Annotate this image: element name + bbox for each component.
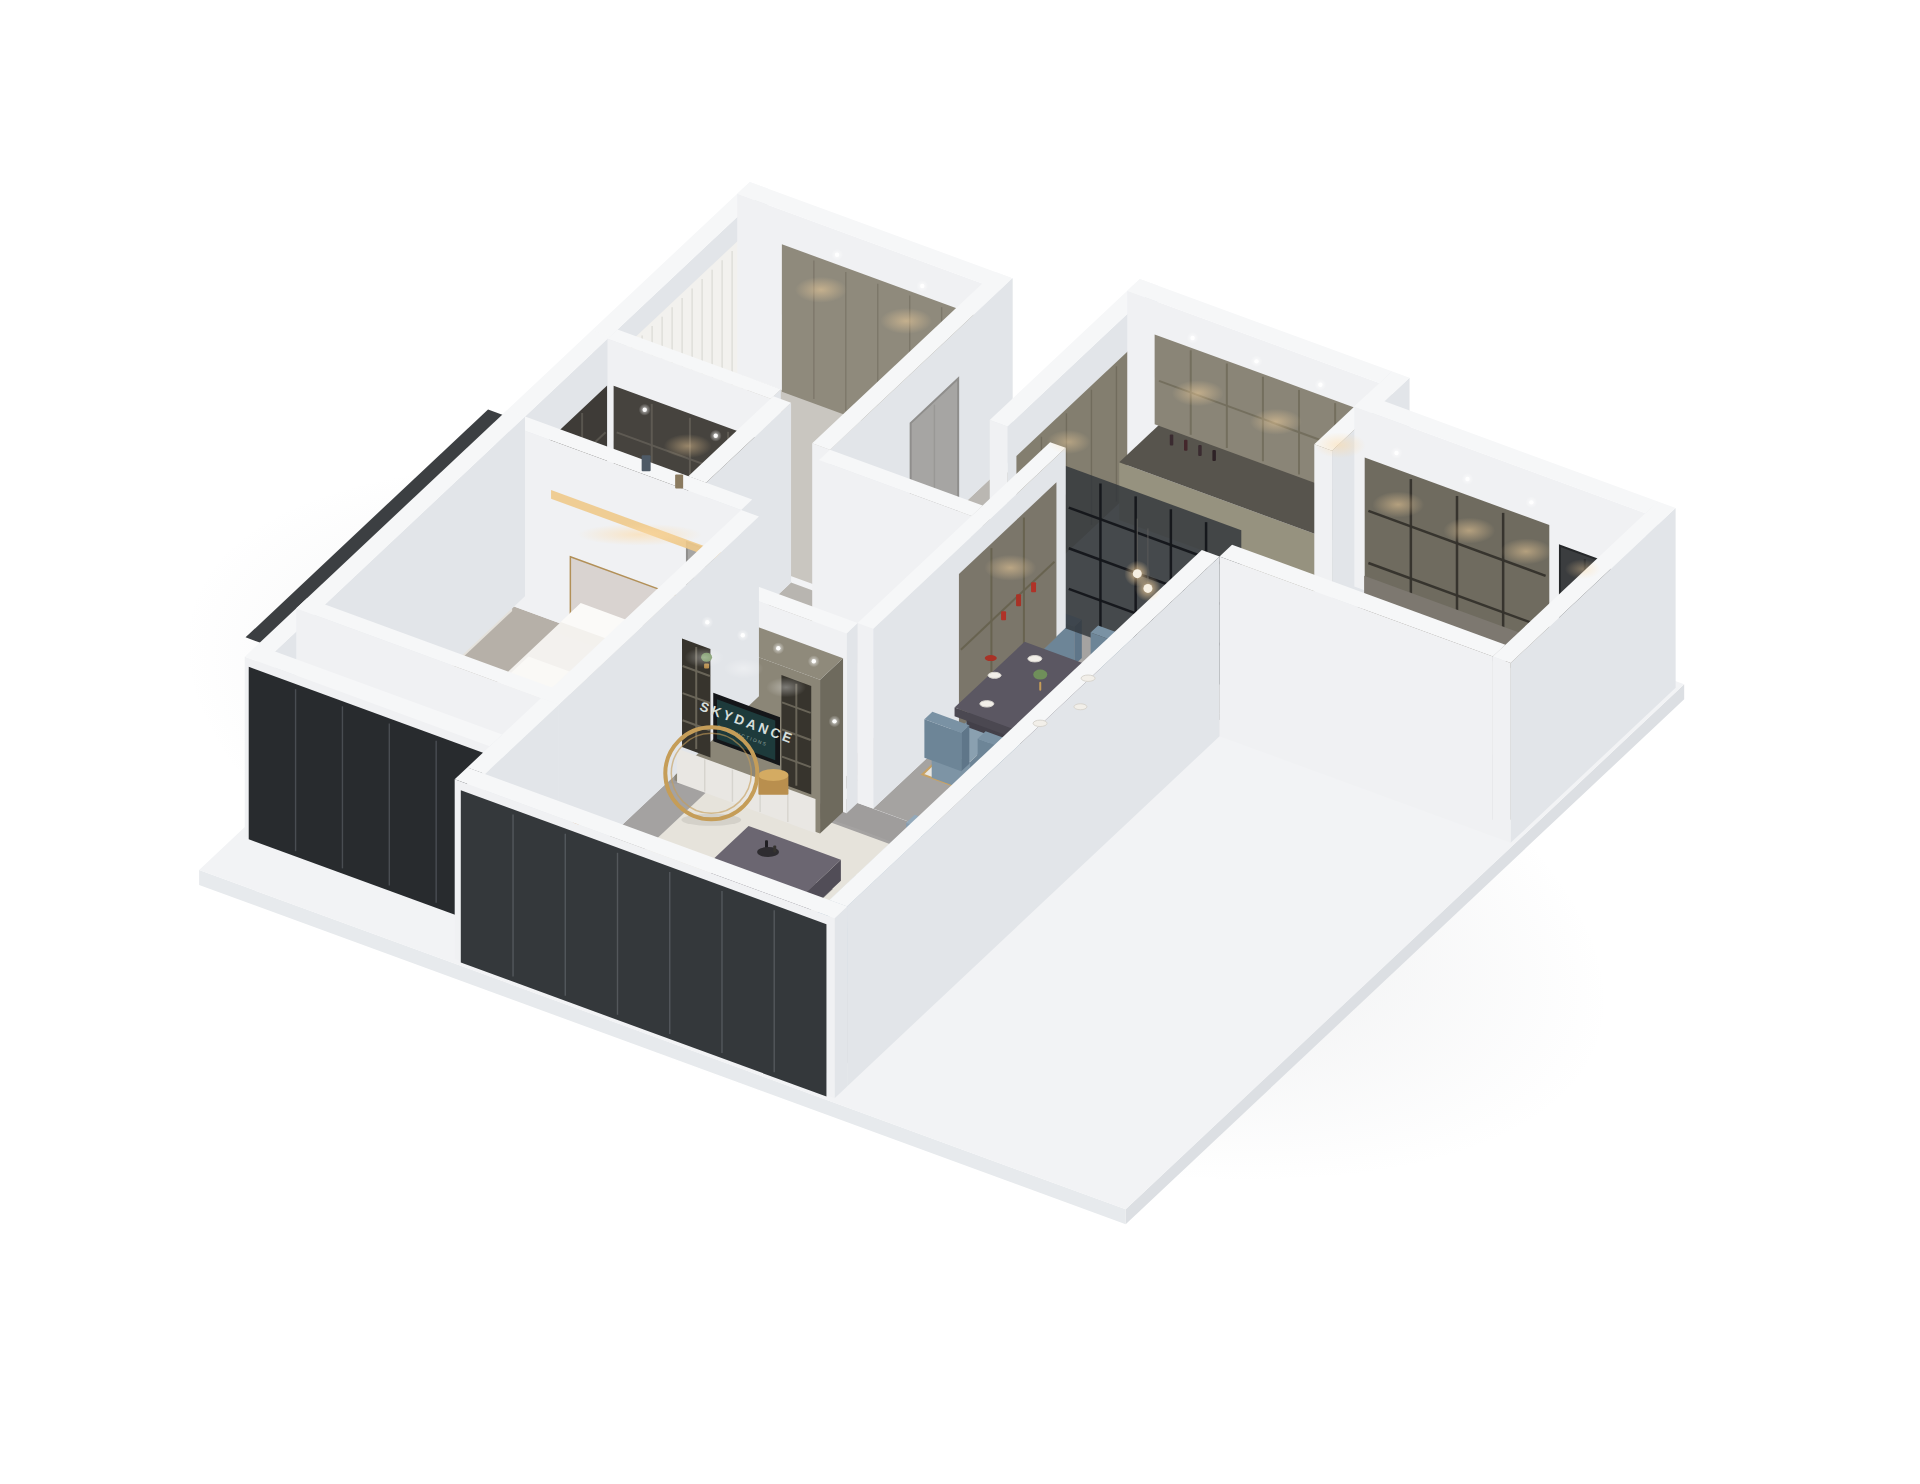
entry-downlight-1	[1394, 451, 1398, 455]
wall-tv-se	[847, 623, 858, 813]
tv-downlight-2	[741, 633, 745, 637]
wine-bottle-1	[1170, 434, 1174, 445]
dining-plate-6	[1074, 704, 1087, 710]
dining-centerpiece-stem	[1039, 682, 1041, 691]
kitchen-downlight-3	[1318, 383, 1322, 387]
floorplan-3d-dollhouse: SKYDANCEPRODUCTIONS	[0, 0, 1920, 1484]
dining-plate-5	[988, 672, 1001, 678]
niche-red-vase-2	[1016, 594, 1021, 606]
niche-red-vase-1	[1031, 582, 1036, 592]
tv-downlight-4	[812, 659, 816, 663]
wall-dining-nw-sw	[858, 623, 874, 809]
niche-red-vase-3	[1001, 611, 1006, 620]
coffee-table-bottle-1	[765, 840, 768, 848]
closet-downlight-2	[714, 434, 718, 438]
closet-clothes-1	[642, 455, 651, 471]
downlight-glow-entry-door	[1565, 559, 1601, 579]
gold-stool-top	[758, 769, 788, 781]
tv-cabinet-se	[820, 658, 843, 833]
wall-living-sw-se	[835, 907, 848, 1099]
downlight-glow-kitchen-nw	[1047, 430, 1091, 454]
dining-centerpiece-flowers	[1033, 670, 1047, 680]
wine-bottle-4	[1212, 450, 1216, 461]
dining-plate-2	[1081, 675, 1095, 681]
downlight-glow-entry-3	[1500, 538, 1552, 564]
closet-downlight-1	[643, 408, 647, 412]
second-bedroom-ceiling-spot	[832, 719, 836, 723]
kitchen-downlight-1	[1190, 336, 1194, 340]
closet-clothes-2	[675, 475, 683, 489]
dining-plate-1	[1028, 656, 1042, 662]
dining-plate-3	[980, 701, 994, 707]
downlight-glow-entry-2	[1443, 518, 1495, 544]
pendant-lamp-globe-2	[1143, 584, 1152, 593]
downlight-glow-wardrobe-2	[880, 308, 932, 334]
kitchen-downlight-2	[1254, 359, 1258, 363]
downlight-glow-niche	[984, 555, 1036, 581]
entry-downlight-2	[1465, 477, 1469, 481]
pendant-lamp-globe-1	[1133, 569, 1142, 578]
dressing-downlight-2	[920, 284, 924, 288]
downlight-glow-entry-1	[1372, 492, 1424, 518]
entry-downlight-3	[1529, 500, 1533, 504]
tv-wall-glow-1	[684, 647, 724, 667]
floorplan-render-stage: SKYDANCEPRODUCTIONS SKYDANCE PRODUCTIONS	[0, 0, 1920, 1484]
tv-wall-glow-3	[766, 677, 806, 697]
coffee-table-bottle-2	[773, 846, 776, 853]
tv-downlight-1	[705, 620, 709, 624]
downlight-glow-kitchen-1	[1172, 380, 1224, 406]
bedroom-cove-glow	[578, 524, 702, 546]
downlight-glow-kitchen-3	[1314, 432, 1366, 458]
tv-wall-glow-2	[724, 659, 764, 679]
tv-downlight-3	[776, 646, 780, 650]
dining-plate-4	[1033, 720, 1047, 726]
niche-red-bowl	[985, 655, 997, 661]
wine-bottle-3	[1198, 445, 1202, 456]
dressing-downlight-1	[835, 253, 839, 257]
wall-entry-se-sw	[1493, 657, 1511, 843]
downlight-glow-kitchen-2	[1250, 409, 1302, 435]
downlight-glow-closet	[664, 434, 712, 458]
dining-chair-5-back-se	[961, 725, 969, 771]
downlight-glow-wardrobe-1	[795, 277, 847, 303]
wine-bottle-2	[1184, 440, 1188, 451]
